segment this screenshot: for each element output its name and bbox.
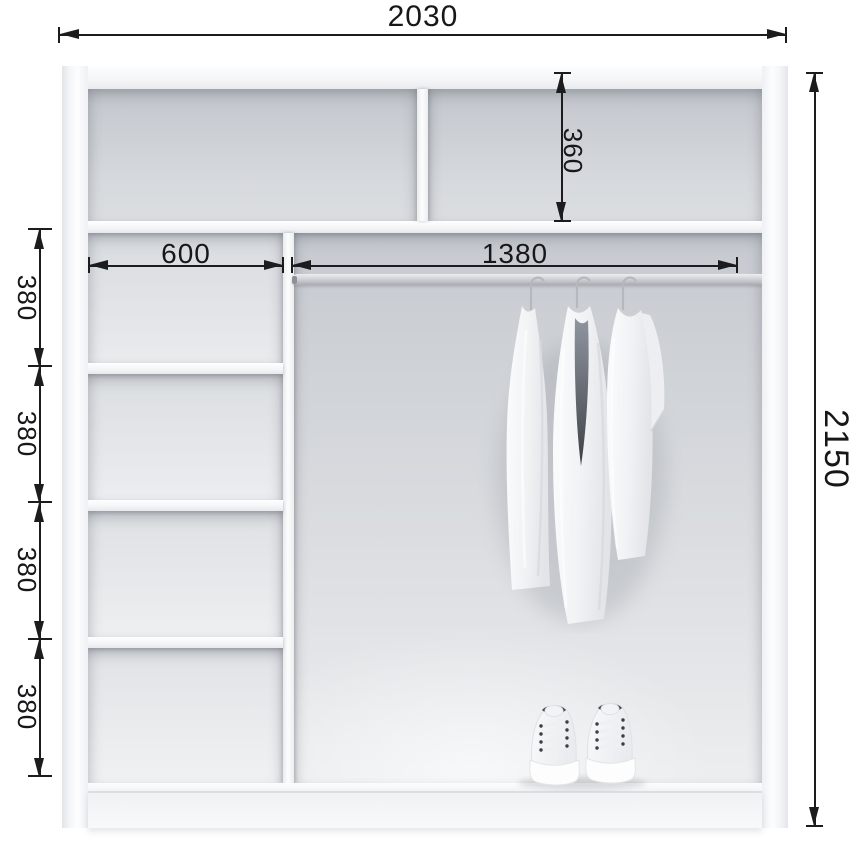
plinth [88, 791, 762, 828]
hanging-clothes-image [478, 268, 682, 633]
arrow-down-icon [34, 621, 44, 640]
top-left-compartment [88, 89, 417, 221]
arrow-up-icon [34, 367, 44, 386]
hanger-wire [531, 278, 636, 310]
shelf-compartment-4 [88, 648, 283, 783]
top-panel [62, 67, 788, 89]
arrow-left-icon [89, 260, 108, 270]
floor-front-edge [88, 783, 762, 791]
dim-label-shelf-gap-1: 380 [14, 258, 40, 338]
arrow-up-icon [809, 73, 819, 92]
dim-label-top-compartment: 360 [560, 111, 586, 191]
arrow-down-icon [809, 807, 819, 826]
dim-label-overall-height: 2150 [819, 389, 853, 509]
shelf [88, 637, 283, 648]
sneakers-image [506, 686, 656, 792]
top-divider [417, 89, 428, 221]
dim-label-shelf-gap-3: 380 [14, 530, 40, 610]
dim-label-rod-length: 1380 [435, 240, 595, 268]
arrow-right-icon [264, 260, 283, 270]
arrow-up-icon [556, 74, 566, 93]
arrow-right-icon [718, 260, 737, 270]
wardrobe-diagram: 2030 2150 360 600 1380 [0, 0, 868, 868]
arrow-up-icon [34, 503, 44, 522]
arrow-up-icon [34, 230, 44, 249]
rod-bracket [292, 276, 297, 284]
shelf-compartment-3 [88, 511, 283, 637]
arrow-down-icon [34, 484, 44, 503]
shelf [88, 363, 283, 374]
center-divider [283, 233, 294, 783]
arrow-down-icon [34, 758, 44, 777]
boot-right [586, 703, 636, 783]
shelf [88, 500, 283, 511]
top-shelf [88, 221, 762, 233]
arrow-up-icon [34, 640, 44, 659]
tank-top-left [507, 306, 550, 590]
arrow-down-icon [34, 348, 44, 367]
arrow-left-icon [292, 260, 311, 270]
arrow-right-icon [767, 29, 786, 39]
dim-label-overall-width: 2030 [323, 2, 523, 32]
dim-label-shelf-gap-4: 380 [14, 667, 40, 747]
right-side-panel [762, 66, 788, 828]
dim-label-shelf-section: 600 [116, 240, 256, 268]
arrow-down-icon [556, 202, 566, 221]
dim-label-shelf-gap-2: 380 [14, 394, 40, 474]
boot-left [530, 705, 580, 785]
top-right-compartment [428, 89, 762, 221]
arrow-left-icon [60, 29, 79, 39]
shelf-compartment-2 [88, 374, 283, 500]
left-side-panel [62, 66, 88, 828]
